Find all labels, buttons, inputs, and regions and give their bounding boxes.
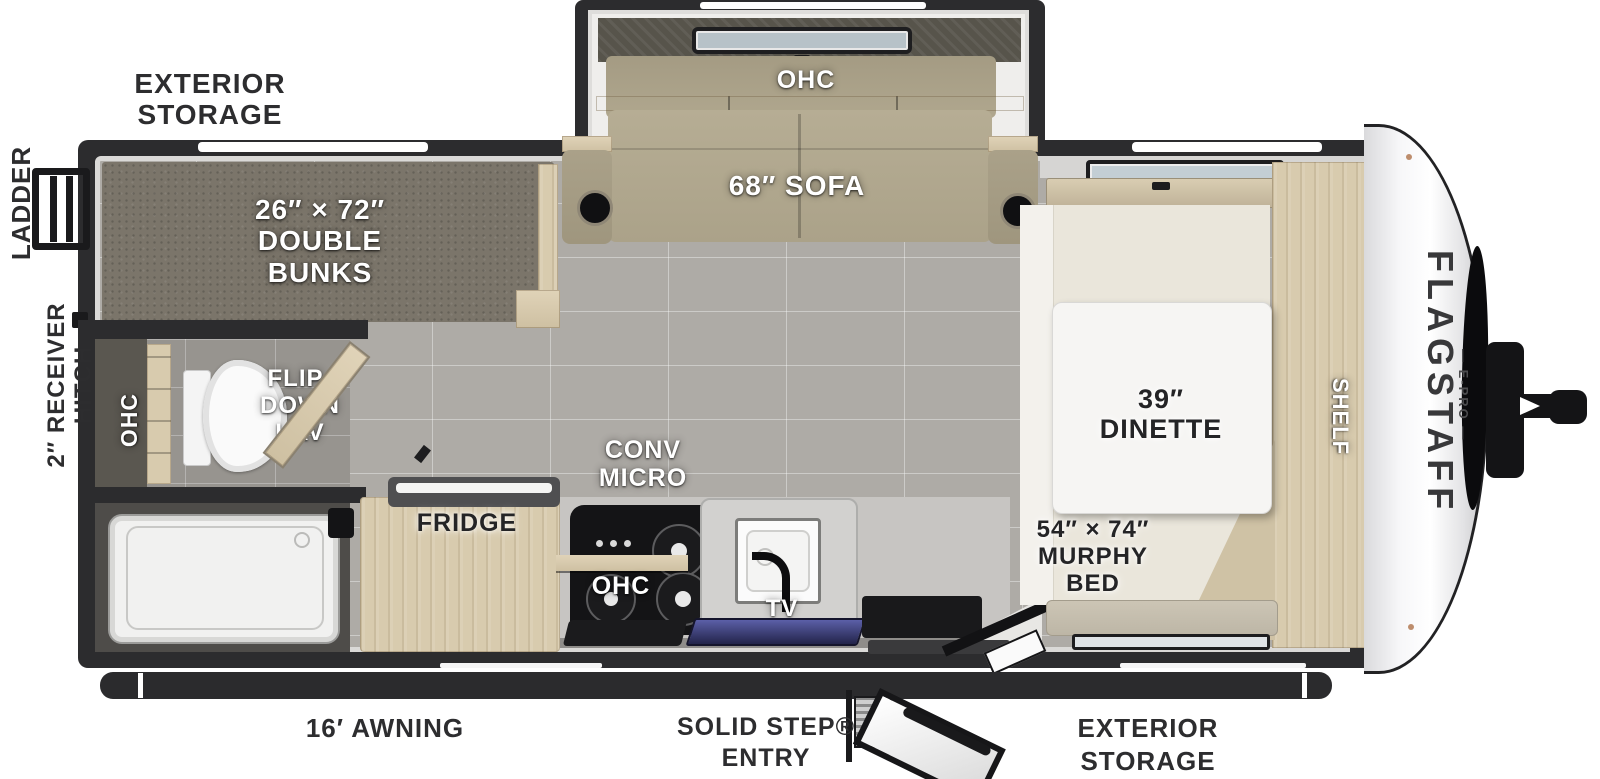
exterior-storage-top-label: EXTERIOR STORAGE <box>110 68 310 131</box>
ladder-rung-1 <box>50 176 57 242</box>
floor-plan: OHC 68″ SOFA 26″ × 72″ DOUBLE BUNKS OHC … <box>0 0 1600 779</box>
bed-foot-window <box>1072 634 1270 650</box>
rear-ladder <box>32 168 90 250</box>
bath-shower-wall <box>78 487 366 503</box>
bunks-label: 26″ × 72″ DOUBLE BUNKS <box>200 194 440 288</box>
sofa-label: 68″ SOFA <box>697 170 897 201</box>
cooktop-knob-3 <box>624 540 631 547</box>
cooktop-knob-1 <box>596 540 603 547</box>
bed-footboard-cushion <box>1046 600 1278 636</box>
awning-label: 16′ AWNING <box>285 714 485 743</box>
shower-fixture <box>328 508 354 538</box>
conv-micro-label: CONV MICRO <box>563 436 723 492</box>
ladder-label: LADDER <box>7 143 33 263</box>
awning-gap-right <box>1302 673 1307 698</box>
sofa-ohc-shelf <box>596 96 1024 111</box>
murphy-bed-label: 54″ × 74″ MURPHY BED <box>1003 517 1183 598</box>
shelf-label: SHELF <box>1326 362 1352 472</box>
ladder-rung-2 <box>66 176 73 242</box>
sofa-window <box>692 27 912 54</box>
bathroom-cabinet <box>147 344 171 484</box>
cap-rivet-top <box>1406 154 1412 160</box>
sofa-back-seam <box>610 148 990 150</box>
kitchen-ohc-label: OHC <box>571 572 671 600</box>
cupholder-left <box>577 190 613 226</box>
awning-bar <box>100 672 1332 699</box>
stove-cover-tray <box>563 620 687 646</box>
tub-drain <box>294 532 310 548</box>
bedroom-wall-window <box>1132 142 1322 152</box>
brand-model: — E-PRO — <box>1452 330 1470 460</box>
slideout-window <box>700 2 926 9</box>
receiver-hitch-label: 2″ RECEIVER HITCH <box>44 265 70 505</box>
solid-step-entry-label: SOLID STEP® ENTRY <box>666 712 866 775</box>
furnace <box>862 596 982 638</box>
awning-gap-left <box>138 673 143 698</box>
fridge-label: FRIDGE <box>387 509 547 537</box>
bunk-wall-window <box>198 142 428 152</box>
cooktop-knob-2 <box>610 540 617 547</box>
cap-rivet-bottom <box>1408 624 1414 630</box>
bunk-step <box>516 290 560 328</box>
sofa-ohc-label: OHC <box>756 66 856 94</box>
kitchen-ohc-shelf <box>556 555 688 571</box>
bottom-wall-gap-left <box>440 663 602 668</box>
entry-door-open <box>853 688 1006 779</box>
hitch-jack-handle <box>1549 390 1587 424</box>
bunk-bath-wall <box>78 320 368 339</box>
bottom-wall-gap-right <box>1120 663 1306 668</box>
fridge-lid-strip <box>396 483 552 493</box>
sink-glass-cover <box>685 618 866 646</box>
bathroom-ohc-label: OHC <box>117 360 143 480</box>
exterior-storage-bottom-label: EXTERIOR STORAGE <box>1048 712 1248 777</box>
headboard-latch <box>1152 182 1170 190</box>
dinette-label: 39″ DINETTE <box>1061 384 1261 444</box>
shelf-platform <box>1272 162 1368 648</box>
